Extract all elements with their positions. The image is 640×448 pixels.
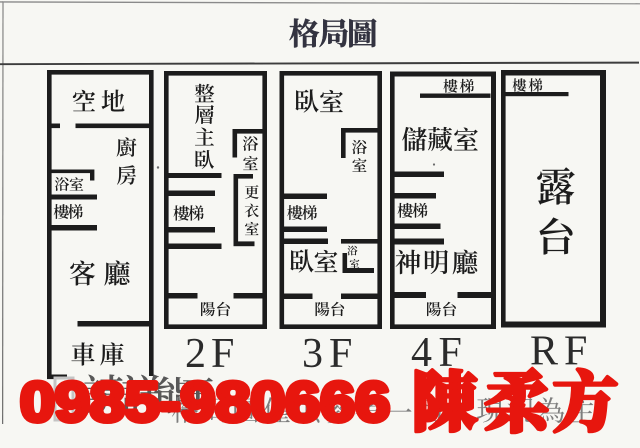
svg-text:0985-980666: 0985-980666 — [20, 370, 390, 433]
svg-text:4: 4 — [411, 330, 432, 376]
svg-text:R: R — [530, 329, 558, 375]
svg-text:F: F — [564, 329, 587, 375]
